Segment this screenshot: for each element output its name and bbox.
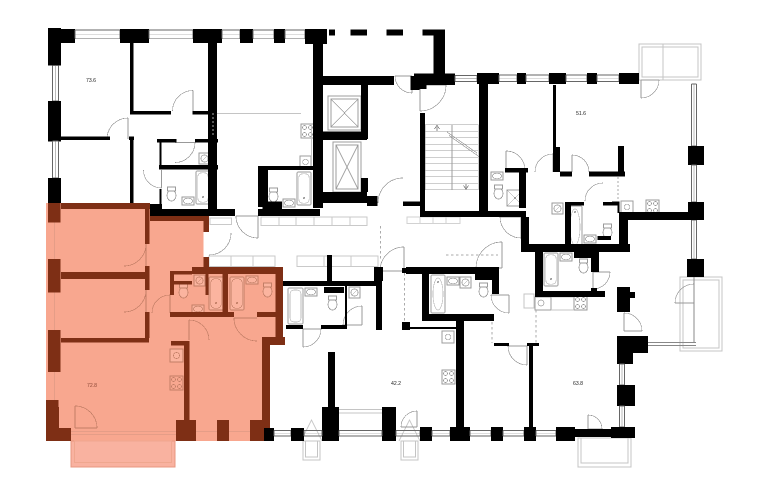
svg-text:51.6: 51.6	[576, 111, 586, 117]
svg-text:72.8: 72.8	[87, 383, 97, 389]
svg-text:73.6: 73.6	[86, 78, 96, 84]
svg-text:42.2: 42.2	[391, 381, 401, 387]
svg-text:63.8: 63.8	[573, 381, 583, 387]
